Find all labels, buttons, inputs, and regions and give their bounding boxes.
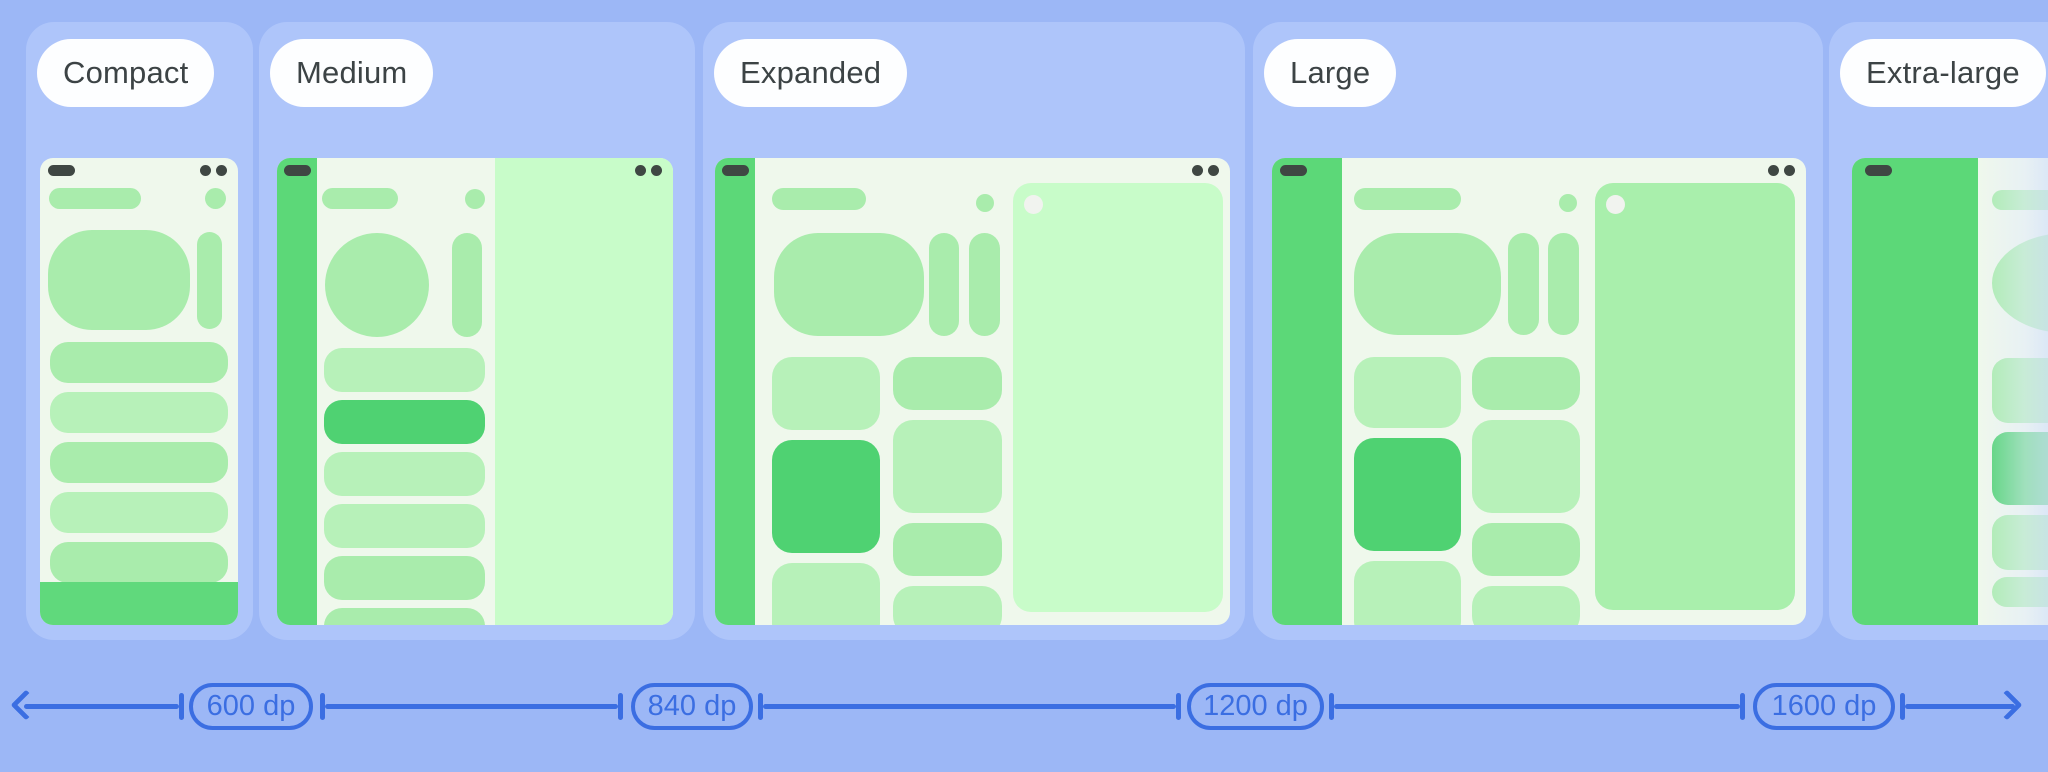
grid-card — [772, 563, 880, 625]
compact-phone-mockup — [40, 158, 238, 625]
camera-dot — [1784, 165, 1795, 176]
detail-pane — [1013, 183, 1223, 612]
search-bar-placeholder — [49, 188, 141, 209]
large-mockup — [1272, 158, 1806, 625]
nav-rail — [277, 158, 317, 625]
camera-dot — [200, 165, 211, 176]
list-row — [50, 392, 228, 433]
avatar-circle — [976, 194, 994, 212]
camera-dot — [216, 165, 227, 176]
list-row — [50, 442, 228, 483]
status-bar-pill — [284, 165, 311, 176]
expanded-mockup — [715, 158, 1230, 625]
grid-card — [1472, 586, 1580, 625]
grid-card — [1354, 561, 1461, 625]
side-pill — [452, 233, 482, 337]
nav-rail — [1272, 158, 1342, 625]
breakpoint-1600dp: 1600 dp — [1753, 683, 1895, 730]
side-pill — [929, 233, 959, 336]
status-bar-pill — [48, 165, 75, 176]
ruler-tick — [179, 693, 184, 720]
search-bar-placeholder — [772, 188, 866, 210]
pane-avatar-circle — [1606, 195, 1625, 214]
arrow-right-icon — [1991, 689, 2022, 720]
list-row — [50, 342, 228, 383]
list-row — [324, 608, 485, 625]
size-class-label-large: Large — [1264, 39, 1396, 107]
ruler-line — [1334, 704, 1740, 709]
grid-card — [893, 586, 1002, 625]
grid-card — [1472, 420, 1580, 513]
ruler-line — [24, 704, 179, 709]
list-row — [324, 504, 485, 548]
side-pill — [197, 232, 222, 329]
size-class-label-expanded: Expanded — [714, 39, 907, 107]
side-pill — [1548, 233, 1579, 335]
grid-card — [893, 523, 1002, 576]
status-bar-pill — [722, 165, 749, 176]
list-row — [50, 542, 228, 583]
grid-card — [1354, 357, 1461, 428]
medium-tablet-mockup — [277, 158, 673, 625]
size-class-card-extra-large: Extra-large — [1829, 22, 2048, 640]
pane-avatar-circle — [1024, 195, 1043, 214]
window-size-classes-diagram: Compact Medium — [0, 0, 2048, 772]
size-class-label-extra-large: Extra-large — [1840, 39, 2046, 107]
detail-pane — [495, 158, 673, 625]
search-bar-placeholder — [322, 188, 398, 209]
grid-card — [893, 357, 1002, 410]
list-row — [324, 556, 485, 600]
status-bar-pill — [1280, 165, 1307, 176]
ruler-line — [763, 704, 1176, 709]
breakpoint-ruler: 600 dp 840 dp 1200 dp 1600 dp — [0, 683, 2048, 730]
ruler-tick — [618, 693, 623, 720]
camera-dot — [651, 165, 662, 176]
grid-card — [1472, 523, 1580, 576]
list-row-selected — [324, 400, 485, 444]
list-row — [50, 492, 228, 533]
side-pill — [1508, 233, 1539, 335]
camera-dot — [1208, 165, 1219, 176]
size-class-label-compact: Compact — [37, 39, 214, 107]
nav-rail — [715, 158, 755, 625]
hero-blob — [1354, 233, 1501, 335]
size-class-label-medium: Medium — [270, 39, 433, 107]
grid-card-selected — [772, 440, 880, 553]
viewport-fade — [1978, 158, 2048, 625]
list-row — [324, 452, 485, 496]
grid-card — [893, 420, 1002, 513]
detail-pane — [1595, 183, 1795, 610]
hero-circle — [325, 233, 429, 337]
ruler-line — [325, 704, 618, 709]
camera-dot — [635, 165, 646, 176]
side-pill — [969, 233, 1000, 336]
status-bar-pill — [1865, 165, 1892, 176]
camera-dot — [1192, 165, 1203, 176]
camera-dot — [1768, 165, 1779, 176]
grid-card-selected — [1354, 438, 1461, 551]
breakpoint-840dp: 840 dp — [631, 683, 753, 730]
extra-large-mockup — [1852, 158, 2048, 625]
grid-card — [772, 357, 880, 430]
avatar-circle — [1559, 194, 1577, 212]
size-class-card-medium: Medium — [259, 22, 695, 640]
ruler-tick — [1740, 693, 1745, 720]
avatar-circle — [465, 189, 485, 209]
nav-rail — [1852, 158, 1978, 625]
hero-blob — [48, 230, 190, 330]
search-bar-placeholder — [1354, 188, 1461, 210]
size-class-card-expanded: Expanded — [703, 22, 1245, 640]
bottom-nav-bar — [40, 582, 238, 625]
breakpoint-1200dp: 1200 dp — [1187, 683, 1324, 730]
size-class-card-large: Large — [1253, 22, 1823, 640]
avatar-circle — [205, 188, 226, 209]
list-row — [324, 348, 485, 392]
breakpoint-600dp: 600 dp — [189, 683, 313, 730]
size-class-card-compact: Compact — [26, 22, 253, 640]
grid-card — [1472, 357, 1580, 410]
hero-blob — [774, 233, 924, 336]
ruler-tick — [1176, 693, 1181, 720]
